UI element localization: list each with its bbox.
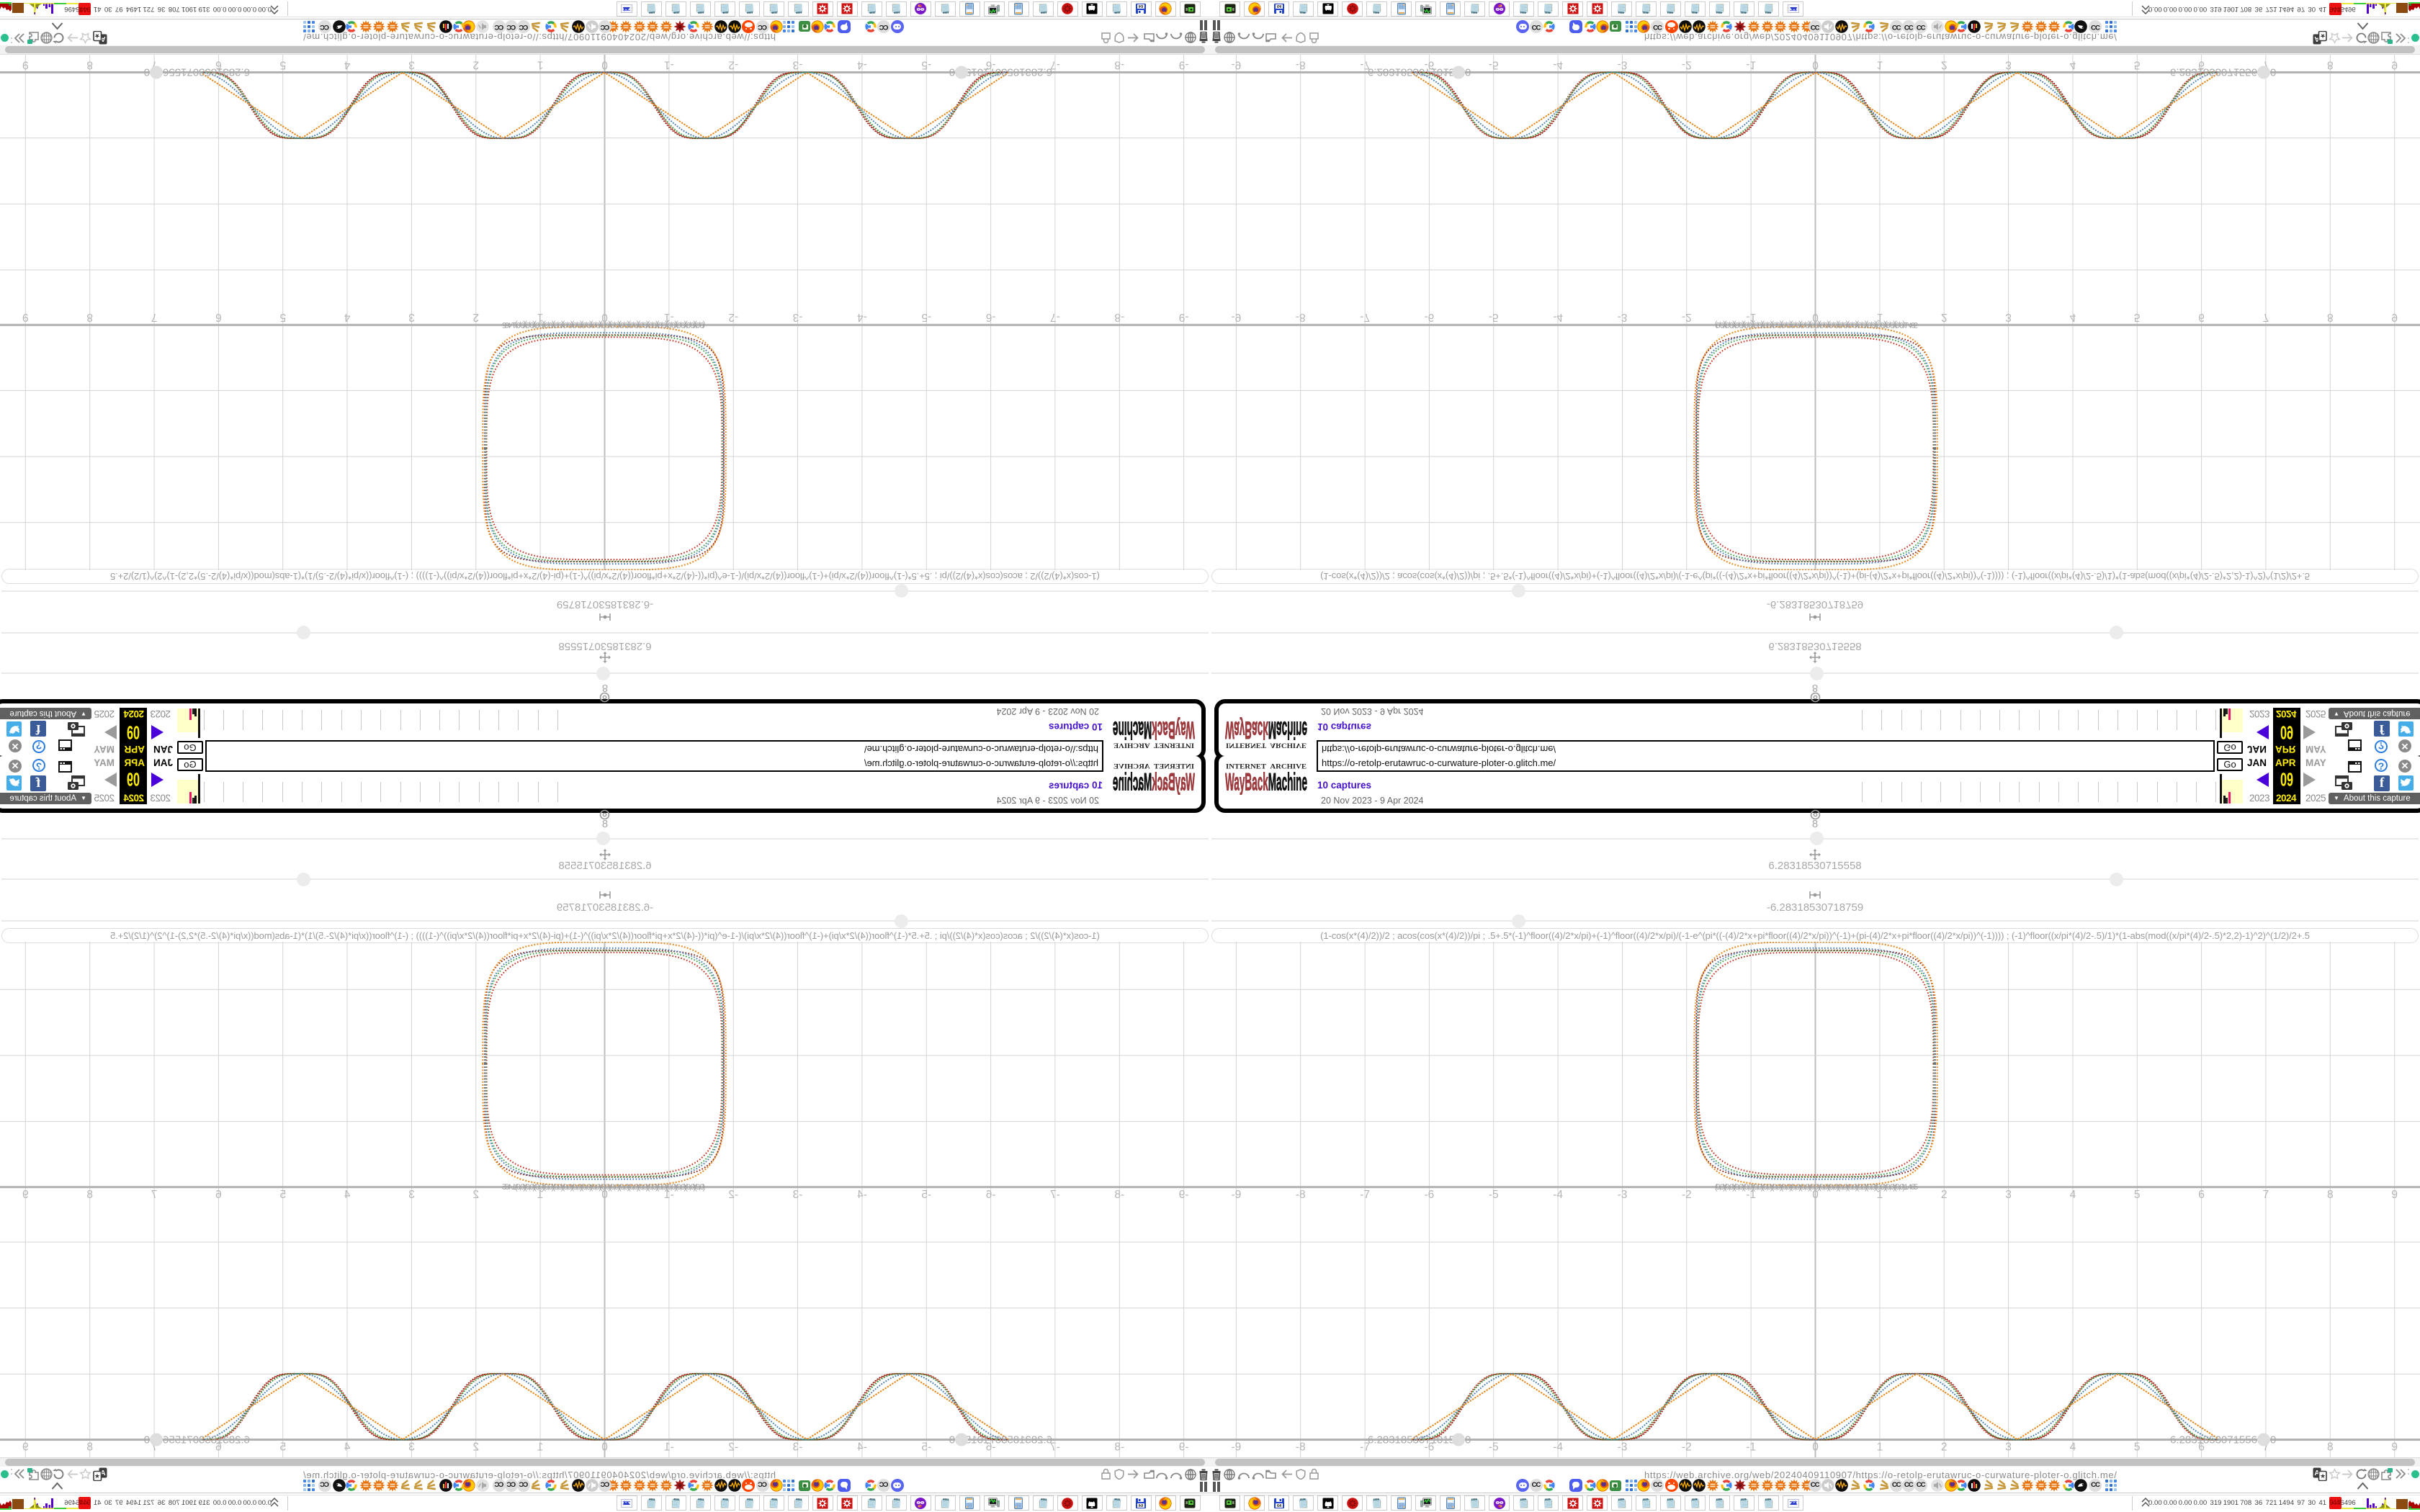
svg-text:-6.28318530710159: -6.28318530710159: [1364, 66, 1461, 78]
svg-text:-4: -4: [1553, 311, 1563, 323]
svg-text:9: 9: [2391, 1189, 2398, 1201]
svg-text:0: 0: [601, 1441, 608, 1454]
svg-text:9: 9: [2391, 311, 2398, 323]
svg-text:7: 7: [2263, 1189, 2269, 1201]
svg-text:4: 4: [2070, 311, 2076, 323]
svg-text:-3: -3: [793, 59, 803, 71]
svg-text:-5: -5: [1489, 311, 1499, 323]
svg-text:-8: -8: [1296, 59, 1306, 71]
svg-text:0: 0: [601, 59, 608, 71]
svg-text:-6: -6: [1425, 1189, 1435, 1201]
svg-text:-2: -2: [1682, 59, 1692, 71]
svg-text:3: 3: [408, 1441, 415, 1454]
svg-text:6: 6: [2198, 1189, 2205, 1201]
svg-text:7: 7: [2263, 311, 2269, 323]
svg-text:2: 2: [1941, 1189, 1948, 1201]
svg-text:2: 2: [472, 1441, 479, 1454]
svg-text:0: 0: [1812, 59, 1819, 71]
svg-text:9: 9: [2391, 1441, 2398, 1454]
svg-text:4: 4: [2070, 1441, 2076, 1454]
svg-text:8: 8: [86, 1189, 93, 1201]
svg-text:-7: -7: [1050, 311, 1060, 323]
svg-text:64: 64: [1138, 1504, 1143, 1508]
svg-text:-7: -7: [1050, 1189, 1060, 1201]
svg-text:-9: -9: [1232, 1189, 1242, 1201]
svg-text:3: 3: [2005, 1441, 2012, 1454]
svg-text:WayBackMachine: WayBackMachine: [1225, 769, 1307, 795]
svg-text:1: 1: [1877, 1441, 1883, 1454]
svg-text:5: 5: [2134, 1441, 2141, 1454]
svg-text:0: 0: [1812, 1441, 1819, 1454]
svg-text:WayBackMachine: WayBackMachine: [1113, 769, 1195, 795]
svg-text:★: ★: [2320, 32, 2326, 40]
svg-text:5: 5: [279, 311, 286, 323]
svg-text:3: 3: [408, 311, 415, 323]
svg-text:(0,0)(0,0)(0,0)(0,0)(0,0)(0,0): (0,0)(0,0)(0,0)(0,0)(0,0)(0,0)(0,0)(0,0)…: [1715, 1183, 1918, 1192]
svg-text:-5: -5: [1489, 1189, 1499, 1201]
svg-text:4: 4: [344, 1441, 350, 1454]
svg-text:★: ★: [2320, 1472, 2326, 1480]
svg-text:6: 6: [2198, 311, 2205, 323]
svg-text:8: 8: [86, 59, 93, 71]
svg-text:2: 2: [1941, 311, 1948, 323]
svg-text:-5: -5: [921, 1441, 931, 1454]
svg-text:-4: -4: [857, 59, 867, 71]
svg-text:-9: -9: [1232, 1441, 1242, 1454]
svg-text:5: 5: [279, 1441, 286, 1454]
svg-text:-8: -8: [1114, 59, 1124, 71]
svg-text:9: 9: [22, 59, 29, 71]
svg-text:WayBackMachine: WayBackMachine: [1225, 717, 1307, 743]
svg-text:9: 9: [22, 1441, 29, 1454]
svg-text:-6: -6: [986, 1189, 996, 1201]
svg-text:09: 09: [2280, 724, 2293, 740]
svg-text:2: 2: [472, 1189, 479, 1201]
svg-text:-8: -8: [1114, 311, 1124, 323]
svg-text:(0,0)(0,0)(0,0)(0,0)(0,0)(0,0): (0,0)(0,0)(0,0)(0,0)(0,0)(0,0)(0,0)(0,0)…: [502, 1183, 705, 1192]
svg-text:-1: -1: [1746, 1441, 1756, 1454]
svg-text:-9: -9: [1179, 311, 1189, 323]
svg-text:6.283185307155607: 6.283185307155607: [151, 1434, 250, 1446]
svg-text:3: 3: [2005, 1189, 2012, 1201]
svg-text:-8: -8: [1114, 1189, 1124, 1201]
svg-text:-8: -8: [1296, 1189, 1306, 1201]
svg-text:-5: -5: [921, 59, 931, 71]
svg-text:4: 4: [344, 311, 350, 323]
svg-text:1: 1: [537, 59, 544, 71]
svg-text:2: 2: [1941, 1441, 1948, 1454]
svg-text:-6: -6: [986, 311, 996, 323]
svg-text:-5: -5: [1489, 1441, 1499, 1454]
svg-text:4: 4: [2070, 1189, 2076, 1201]
svg-text:-2: -2: [728, 1441, 738, 1454]
svg-text:(0,0)(0,0)(0,0)(0,0)(0,0)(0,0): (0,0)(0,0)(0,0)(0,0)(0,0)(0,0)(0,0)(0,0)…: [1715, 320, 1918, 329]
svg-text:-2: -2: [728, 1189, 738, 1201]
svg-text:1: 1: [1877, 59, 1883, 71]
svg-text:-3: -3: [793, 311, 803, 323]
svg-text:4: 4: [344, 59, 350, 71]
svg-text:-2: -2: [728, 311, 738, 323]
svg-text:-6: -6: [1425, 311, 1435, 323]
svg-text:0: 0: [1465, 66, 1471, 78]
svg-text:09: 09: [127, 772, 140, 788]
svg-text:5: 5: [2134, 311, 2141, 323]
svg-text:0: 0: [144, 66, 150, 78]
svg-text:2: 2: [472, 311, 479, 323]
svg-text:4: 4: [344, 1189, 350, 1201]
svg-text:0: 0: [949, 66, 955, 78]
svg-text:-1: -1: [664, 59, 674, 71]
svg-text:-5: -5: [921, 1189, 931, 1201]
svg-text:-1: -1: [1746, 59, 1756, 71]
svg-text:09: 09: [2280, 772, 2293, 788]
svg-text:64: 64: [1277, 4, 1282, 9]
svg-text:-4: -4: [1553, 1189, 1563, 1201]
svg-text:-3: -3: [1618, 311, 1628, 323]
svg-text:-3: -3: [793, 1189, 803, 1201]
svg-text:6.283185307155607: 6.283185307155607: [151, 66, 250, 78]
svg-text:★: ★: [94, 1472, 100, 1480]
svg-text:1: 1: [537, 1441, 544, 1454]
svg-text:-3: -3: [793, 1441, 803, 1454]
svg-text:-4: -4: [857, 1189, 867, 1201]
svg-text:-4: -4: [857, 1441, 867, 1454]
svg-text:8: 8: [2327, 1189, 2334, 1201]
svg-text:-4: -4: [1553, 1441, 1563, 1454]
svg-text:-9: -9: [1179, 1441, 1189, 1454]
svg-text:9: 9: [2391, 59, 2398, 71]
svg-text:-9: -9: [1179, 59, 1189, 71]
svg-text:6: 6: [215, 311, 222, 323]
svg-text:8: 8: [2327, 311, 2334, 323]
svg-text:-9: -9: [1232, 59, 1242, 71]
svg-text:-5: -5: [1489, 59, 1499, 71]
svg-text:64: 64: [1138, 4, 1143, 9]
svg-text:5: 5: [279, 1189, 286, 1201]
svg-text:8: 8: [86, 311, 93, 323]
svg-text:6: 6: [215, 1189, 222, 1201]
svg-text:-3: -3: [1618, 1441, 1628, 1454]
svg-text:-2: -2: [1682, 1441, 1692, 1454]
svg-text:9: 9: [22, 1189, 29, 1201]
svg-text:3: 3: [408, 59, 415, 71]
svg-text:0: 0: [949, 1434, 955, 1446]
svg-text:0: 0: [1465, 1434, 1471, 1446]
svg-text:-8: -8: [1296, 311, 1306, 323]
svg-text:9: 9: [22, 311, 29, 323]
svg-text:-7: -7: [1360, 1189, 1370, 1201]
svg-text:6.283185307155607: 6.283185307155607: [2170, 66, 2269, 78]
svg-text:3: 3: [2005, 311, 2012, 323]
svg-text:-9: -9: [1232, 311, 1242, 323]
svg-text:8: 8: [2327, 1441, 2334, 1454]
svg-text:5: 5: [2134, 59, 2141, 71]
svg-text:(0,0)(0,0)(0,0)(0,0)(0,0)(0,0): (0,0)(0,0)(0,0)(0,0)(0,0)(0,0)(0,0)(0,0)…: [502, 320, 705, 329]
svg-text:-8: -8: [1296, 1441, 1306, 1454]
svg-text:INTERNET ARCHIVE: INTERNET ARCHIVE: [1113, 742, 1194, 749]
svg-text:7: 7: [151, 311, 158, 323]
svg-text:-9: -9: [1179, 1189, 1189, 1201]
svg-text:3: 3: [408, 1189, 415, 1201]
svg-text:-4: -4: [1553, 59, 1563, 71]
svg-text:-2: -2: [1682, 311, 1692, 323]
svg-text:0: 0: [2270, 66, 2276, 78]
svg-text:-1: -1: [664, 1441, 674, 1454]
svg-text:7: 7: [151, 1189, 158, 1201]
svg-text:8: 8: [86, 1441, 93, 1454]
svg-text:6.283185307155607: 6.283185307155607: [2170, 1434, 2269, 1446]
svg-text:-7: -7: [1360, 311, 1370, 323]
svg-text:2: 2: [472, 59, 479, 71]
svg-text:-6.28318530710159: -6.28318530710159: [959, 1434, 1056, 1446]
svg-text:2: 2: [1941, 59, 1948, 71]
svg-text:INTERNET ARCHIVE: INTERNET ARCHIVE: [1226, 742, 1307, 749]
svg-text:3: 3: [2005, 59, 2012, 71]
svg-text:09: 09: [127, 724, 140, 740]
svg-text:WayBackMachine: WayBackMachine: [1113, 717, 1195, 743]
svg-text:-4: -4: [857, 311, 867, 323]
svg-text:-5: -5: [921, 311, 931, 323]
svg-text:8: 8: [2327, 59, 2334, 71]
svg-text:64: 64: [1277, 1504, 1282, 1508]
svg-text:-8: -8: [1114, 1441, 1124, 1454]
svg-text:5: 5: [279, 59, 286, 71]
svg-text:-6.28318530710159: -6.28318530710159: [1364, 1434, 1461, 1446]
svg-text:-2: -2: [1682, 1189, 1692, 1201]
svg-text:0: 0: [2270, 1434, 2276, 1446]
svg-text:-3: -3: [1618, 59, 1628, 71]
svg-text:0: 0: [144, 1434, 150, 1446]
svg-text:4: 4: [2070, 59, 2076, 71]
svg-text:★: ★: [94, 32, 100, 40]
svg-text:-3: -3: [1618, 1189, 1628, 1201]
svg-text:-2: -2: [728, 59, 738, 71]
svg-text:-6.28318530710159: -6.28318530710159: [959, 66, 1056, 78]
svg-text:5: 5: [2134, 1189, 2141, 1201]
